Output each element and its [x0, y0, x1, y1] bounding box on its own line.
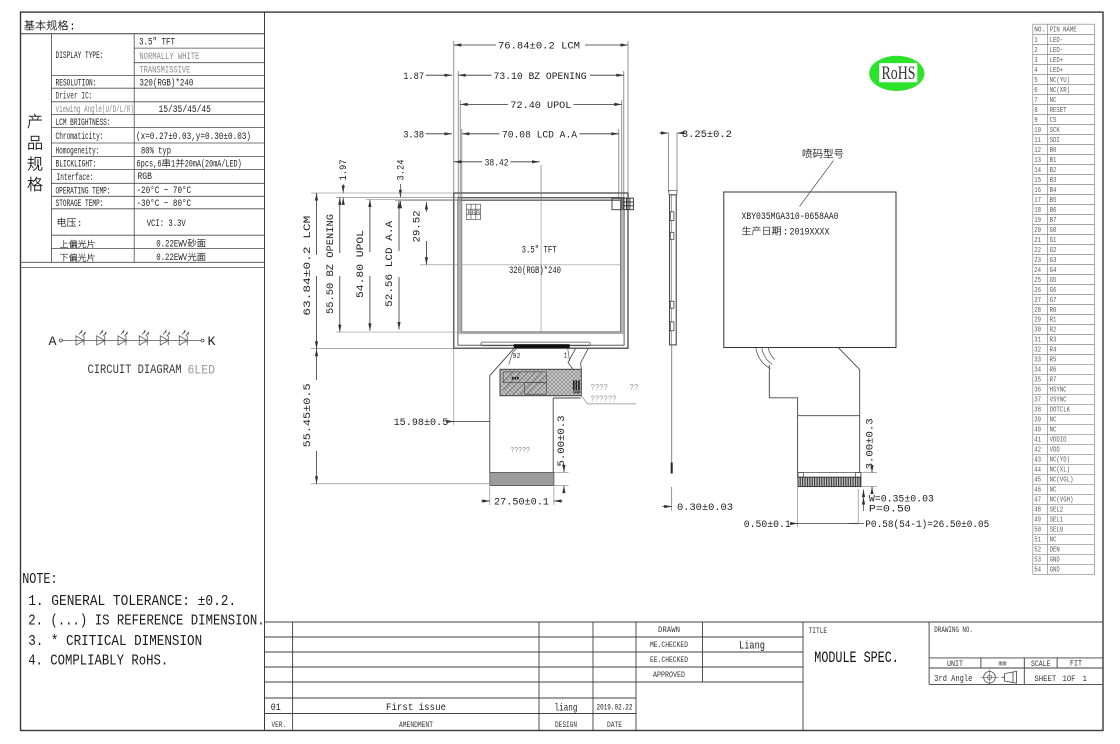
- svg-text:RGB: RGB: [138, 172, 152, 183]
- svg-text:19: 19: [1034, 217, 1041, 225]
- svg-text:4: 4: [1034, 67, 1037, 75]
- svg-text:43: 43: [1034, 457, 1041, 465]
- svg-text:NC(XL): NC(XL): [1050, 467, 1070, 475]
- svg-text:3.5" TFT: 3.5" TFT: [139, 37, 175, 49]
- svg-text:21: 21: [1034, 237, 1041, 245]
- svg-text:1OF: 1OF: [1063, 674, 1076, 684]
- svg-text:AMENDMENT: AMENDMENT: [399, 721, 433, 730]
- svg-text:0.50±0.1: 0.50±0.1: [744, 519, 791, 531]
- svg-text:14: 14: [1034, 167, 1041, 175]
- svg-text:9: 9: [1034, 117, 1037, 125]
- svg-text:NC(XR): NC(XR): [1050, 87, 1070, 95]
- svg-text:NO.: NO.: [1034, 27, 1045, 35]
- svg-text:33: 33: [1034, 357, 1041, 365]
- svg-text:??????: ??????: [591, 394, 617, 405]
- svg-text:52: 52: [1034, 547, 1041, 555]
- svg-text:Homogeneity:: Homogeneity:: [56, 145, 100, 157]
- svg-text:VER.: VER.: [272, 721, 287, 730]
- svg-text:4. COMPLIABLY RoHS.: 4. COMPLIABLY RoHS.: [28, 653, 168, 670]
- svg-text:APPROVED: APPROVED: [653, 671, 685, 680]
- svg-text:B4: B4: [1050, 187, 1057, 195]
- svg-text:27.50±0.1: 27.50±0.1: [494, 497, 549, 509]
- svg-text:CS: CS: [1050, 117, 1057, 125]
- svg-text:34: 34: [1034, 367, 1041, 375]
- svg-text:VSYNC: VSYNC: [1050, 397, 1068, 405]
- svg-text:RESOLUTION:: RESOLUTION:: [56, 78, 97, 89]
- svg-text:G1: G1: [1050, 237, 1057, 245]
- svg-text:SEL1: SEL1: [1050, 517, 1064, 525]
- svg-text:CIRCUIT DIAGRAM: CIRCUIT DIAGRAM: [88, 363, 182, 377]
- svg-text:DOTCLK: DOTCLK: [1050, 407, 1071, 415]
- svg-text:A: A: [49, 334, 57, 349]
- svg-text:TITLE: TITLE: [809, 627, 828, 636]
- svg-text:NC: NC: [1050, 417, 1057, 425]
- svg-text:R3: R3: [1050, 337, 1057, 345]
- svg-text:PIN NAME: PIN NAME: [1050, 27, 1077, 35]
- svg-text:GND: GND: [1050, 557, 1060, 565]
- svg-text:63.84±0.2 LCM: 63.84±0.2 LCM: [302, 216, 314, 316]
- svg-text:B1: B1: [1050, 157, 1057, 165]
- svg-text:R5: R5: [1050, 357, 1057, 365]
- svg-text:70.08 LCD A.A: 70.08 LCD A.A: [502, 130, 578, 142]
- svg-text:R1: R1: [1050, 317, 1057, 325]
- svg-text:Chromaticity:: Chromaticity:: [56, 131, 104, 143]
- svg-text:FIT: FIT: [1070, 660, 1082, 669]
- svg-text:1: 1: [1083, 674, 1088, 684]
- svg-text:NC: NC: [1050, 487, 1057, 495]
- svg-text:12: 12: [1034, 147, 1041, 155]
- svg-text:NC(VGH): NC(VGH): [1050, 497, 1074, 505]
- svg-text:mm: mm: [999, 661, 1007, 669]
- svg-text:LED-: LED-: [1050, 47, 1064, 55]
- svg-text:50: 50: [1034, 527, 1041, 535]
- svg-text:47: 47: [1034, 497, 1041, 505]
- svg-text:320(RGB)*240: 320(RGB)*240: [139, 77, 193, 89]
- svg-text:0.30±0.03: 0.30±0.03: [677, 502, 733, 514]
- svg-text:?????: ?????: [511, 447, 531, 456]
- svg-text:26: 26: [1034, 287, 1041, 295]
- svg-text:SEL2: SEL2: [1050, 507, 1064, 515]
- svg-text:B0: B0: [1050, 147, 1057, 155]
- svg-text:DEN: DEN: [1050, 547, 1060, 555]
- svg-text:GND: GND: [1050, 567, 1060, 575]
- svg-text:STORAGE TEMP:: STORAGE TEMP:: [56, 199, 104, 210]
- svg-text:23: 23: [1034, 257, 1041, 265]
- svg-text:VDD: VDD: [1050, 447, 1060, 455]
- svg-text:G2: G2: [1050, 247, 1057, 255]
- svg-text:ME.CHECKED: ME.CHECKED: [650, 641, 688, 650]
- svg-text:72.40 UPOL: 72.40 UPOL: [510, 100, 571, 112]
- svg-text:13: 13: [1034, 157, 1041, 165]
- svg-text:2019.02.22: 2019.02.22: [597, 704, 633, 713]
- svg-text:R2: R2: [1050, 327, 1057, 335]
- svg-text:3.00±0.3: 3.00±0.3: [865, 418, 877, 469]
- svg-text:11: 11: [1034, 137, 1041, 145]
- svg-text:01: 01: [271, 703, 281, 714]
- svg-text:53: 53: [1034, 557, 1041, 565]
- svg-text:UNIT: UNIT: [947, 660, 963, 669]
- svg-text:MODULE SPEC.: MODULE SPEC.: [814, 649, 899, 667]
- svg-text:-30°C ~ 80°C: -30°C ~ 80°C: [137, 198, 192, 210]
- svg-text:6pcs,6: 6pcs,6: [137, 160, 162, 171]
- svg-text:41: 41: [1034, 437, 1041, 445]
- svg-text:B6: B6: [1050, 207, 1057, 215]
- svg-text:8: 8: [1034, 107, 1037, 115]
- svg-text:SEL0: SEL0: [1050, 527, 1064, 535]
- svg-text:G5: G5: [1050, 277, 1057, 285]
- svg-text:DESIGN: DESIGN: [555, 721, 577, 730]
- svg-text:Liang: Liang: [739, 641, 765, 653]
- svg-text:-20°C ~ 70°C: -20°C ~ 70°C: [137, 185, 192, 197]
- svg-text:G4: G4: [1050, 267, 1057, 275]
- svg-text:46: 46: [1034, 487, 1041, 495]
- svg-text:0.22EWV: 0.22EWV: [156, 240, 187, 251]
- svg-text:30: 30: [1034, 327, 1041, 335]
- svg-text:29: 29: [1034, 317, 1041, 325]
- svg-text:2: 2: [1034, 47, 1037, 55]
- svg-text:XBY035MGA310-0658AA0: XBY035MGA310-0658AA0: [742, 212, 839, 223]
- svg-text:BLICKLIGHT:: BLICKLIGHT:: [56, 160, 97, 171]
- svg-text:44: 44: [1034, 467, 1041, 475]
- svg-text:54.80 UPOL: 54.80 UPOL: [355, 230, 367, 298]
- svg-text:37: 37: [1034, 397, 1041, 405]
- svg-text:39: 39: [1034, 417, 1041, 425]
- svg-text:RESET: RESET: [1050, 107, 1068, 115]
- svg-text:DATE: DATE: [607, 721, 622, 730]
- svg-text:27: 27: [1034, 297, 1041, 305]
- svg-text:17: 17: [1034, 197, 1041, 205]
- svg-text:55.45±0.5: 55.45±0.5: [302, 383, 314, 447]
- svg-text:(x=0.27±0.03,y=0.30±0.03): (x=0.27±0.03,y=0.30±0.03): [136, 131, 251, 143]
- svg-text:31: 31: [1034, 337, 1041, 345]
- svg-text:10: 10: [1034, 127, 1041, 135]
- svg-text:6LED: 6LED: [188, 364, 216, 378]
- svg-text:RoHS: RoHS: [882, 63, 916, 84]
- svg-text:80% typ: 80% typ: [141, 146, 171, 157]
- svg-text::: :: [783, 228, 789, 239]
- svg-text:B2: B2: [1050, 167, 1057, 175]
- svg-text:TRANSMISSIVE: TRANSMISSIVE: [139, 66, 190, 77]
- svg-text:36: 36: [1034, 387, 1041, 395]
- svg-text:6: 6: [1034, 87, 1037, 95]
- svg-text:1. GENERAL TOLERANCE: ±0.2.: 1. GENERAL TOLERANCE: ±0.2.: [28, 593, 236, 610]
- svg-text:1: 1: [564, 353, 568, 361]
- svg-text:92: 92: [513, 353, 521, 361]
- svg-text:32: 32: [1034, 347, 1041, 355]
- svg-text:52.56 LCD A.A: 52.56 LCD A.A: [384, 220, 396, 307]
- svg-text:76.84±0.2 LCM: 76.84±0.2 LCM: [498, 41, 580, 53]
- svg-text:5.00±0.3: 5.00±0.3: [556, 416, 568, 467]
- svg-text:320(RGB)*240: 320(RGB)*240: [509, 265, 561, 277]
- svg-text:B7: B7: [1050, 217, 1057, 225]
- svg-text:NC: NC: [1050, 537, 1057, 545]
- svg-text:7: 7: [1034, 97, 1037, 105]
- svg-text:2019XXXX: 2019XXXX: [790, 228, 830, 239]
- svg-text:DRAWN: DRAWN: [658, 626, 680, 635]
- svg-text:28: 28: [1034, 307, 1041, 315]
- svg-text:42: 42: [1034, 447, 1041, 455]
- svg-text::: :: [69, 21, 76, 33]
- svg-text:40: 40: [1034, 427, 1041, 435]
- svg-text:1: 1: [171, 160, 175, 171]
- svg-text:NOTE:: NOTE:: [22, 571, 57, 588]
- svg-text:P=0.50: P=0.50: [869, 504, 911, 516]
- svg-text:29.52: 29.52: [411, 210, 423, 242]
- svg-text:LCM BRIGHTNESS:: LCM BRIGHTNESS:: [56, 118, 111, 129]
- svg-text:B5: B5: [1050, 197, 1057, 205]
- svg-text:3.38: 3.38: [403, 130, 424, 142]
- svg-text:48: 48: [1034, 507, 1041, 515]
- svg-text:15/35/45/45: 15/35/45/45: [159, 104, 211, 116]
- svg-text:RGB: RGB: [468, 210, 481, 217]
- svg-text:Driver IC:: Driver IC:: [56, 91, 93, 103]
- svg-text:24: 24: [1034, 267, 1041, 275]
- svg-text:NC(YD): NC(YD): [1050, 457, 1070, 465]
- svg-text:LED+: LED+: [1050, 67, 1064, 75]
- svg-text:R4: R4: [1050, 347, 1057, 355]
- svg-text:3.25±0.2: 3.25±0.2: [682, 129, 732, 141]
- svg-text:R7: R7: [1050, 377, 1057, 385]
- svg-text:1.97: 1.97: [338, 160, 350, 181]
- svg-text:25: 25: [1034, 277, 1041, 285]
- svg-text:HSYNC: HSYNC: [1050, 387, 1068, 395]
- svg-text:55.50 BZ OPENING: 55.50 BZ OPENING: [325, 214, 337, 314]
- svg-text:3rd Angle: 3rd Angle: [934, 674, 972, 684]
- svg-text:5: 5: [1034, 77, 1037, 85]
- svg-text:3.24: 3.24: [396, 160, 408, 181]
- svg-text:35: 35: [1034, 377, 1041, 385]
- svg-text:G7: G7: [1050, 297, 1057, 305]
- svg-text:NC(VGL): NC(VGL): [1050, 477, 1074, 485]
- svg-text:20mA(20mA/LED): 20mA(20mA/LED): [185, 159, 242, 171]
- svg-text:liang: liang: [555, 703, 578, 715]
- svg-text:First issue: First issue: [386, 702, 446, 714]
- svg-text:3: 3: [1034, 57, 1037, 65]
- svg-text:20: 20: [1034, 227, 1041, 235]
- svg-text:VCI: 3.3V: VCI: 3.3V: [147, 219, 186, 230]
- svg-text:EE.CHECKED: EE.CHECKED: [650, 656, 688, 665]
- svg-text:????: ????: [591, 382, 609, 393]
- svg-text:0.22EWV: 0.22EWV: [156, 253, 187, 264]
- svg-text:LED-: LED-: [1050, 37, 1064, 45]
- svg-text:15.98±0.5: 15.98±0.5: [394, 417, 449, 429]
- svg-text:DRAWING NO.: DRAWING NO.: [934, 626, 973, 635]
- svg-text:SCK: SCK: [1050, 127, 1061, 135]
- svg-text:16: 16: [1034, 187, 1041, 195]
- svg-text:SDI: SDI: [1050, 137, 1060, 145]
- svg-text:1.87: 1.87: [403, 71, 424, 83]
- svg-text:3.5" TFT: 3.5" TFT: [522, 245, 557, 257]
- svg-text:G6: G6: [1050, 287, 1057, 295]
- svg-text:G3: G3: [1050, 257, 1057, 265]
- svg-text:SHEET: SHEET: [1034, 674, 1056, 684]
- svg-text:51: 51: [1034, 537, 1041, 545]
- svg-text:NC: NC: [1050, 427, 1057, 435]
- svg-text:NORMALLY WHITE: NORMALLY WHITE: [139, 52, 199, 63]
- svg-text:??: ??: [630, 382, 639, 393]
- svg-text:OPERATING TEMP:: OPERATING TEMP:: [56, 186, 111, 197]
- svg-text:SCALE: SCALE: [1031, 660, 1051, 669]
- svg-text::: :: [77, 219, 82, 229]
- svg-text:54: 54: [1034, 567, 1041, 575]
- svg-text:38: 38: [1034, 407, 1041, 415]
- svg-text:DISPLAY TYPE:: DISPLAY TYPE:: [56, 51, 104, 62]
- svg-text:R6: R6: [1050, 367, 1057, 375]
- svg-text:45: 45: [1034, 477, 1041, 485]
- svg-text:Viewing Angle(U/D/L/R): Viewing Angle(U/D/L/R): [56, 104, 135, 116]
- svg-text:1: 1: [1034, 37, 1037, 45]
- svg-text:22: 22: [1034, 247, 1041, 255]
- svg-text:NC(YU): NC(YU): [1050, 77, 1070, 85]
- svg-text:15: 15: [1034, 177, 1041, 185]
- svg-text:Interface:: Interface:: [57, 172, 94, 184]
- svg-text:VDDID: VDDID: [1050, 437, 1067, 445]
- svg-text:38.42: 38.42: [485, 157, 509, 169]
- svg-text:73.10 BZ OPENING: 73.10 BZ OPENING: [494, 71, 587, 83]
- svg-text:B3: B3: [1050, 177, 1057, 185]
- svg-text:18: 18: [1034, 207, 1041, 215]
- svg-text:3. * CRITICAL DIMENSION: 3. * CRITICAL DIMENSION: [28, 633, 202, 650]
- svg-text:P0.58(54-1)=26.50±0.05: P0.58(54-1)=26.50±0.05: [865, 519, 989, 531]
- svg-text:NC: NC: [1050, 97, 1057, 105]
- svg-text:49: 49: [1034, 517, 1041, 525]
- svg-text:K: K: [208, 334, 216, 349]
- svg-text:2. (...) IS REFERENCE DIMENSIO: 2. (...) IS REFERENCE DIMENSION.: [28, 613, 265, 630]
- svg-text:R0: R0: [1050, 307, 1057, 315]
- svg-text:LED+: LED+: [1050, 57, 1064, 65]
- svg-text:G0: G0: [1050, 227, 1057, 235]
